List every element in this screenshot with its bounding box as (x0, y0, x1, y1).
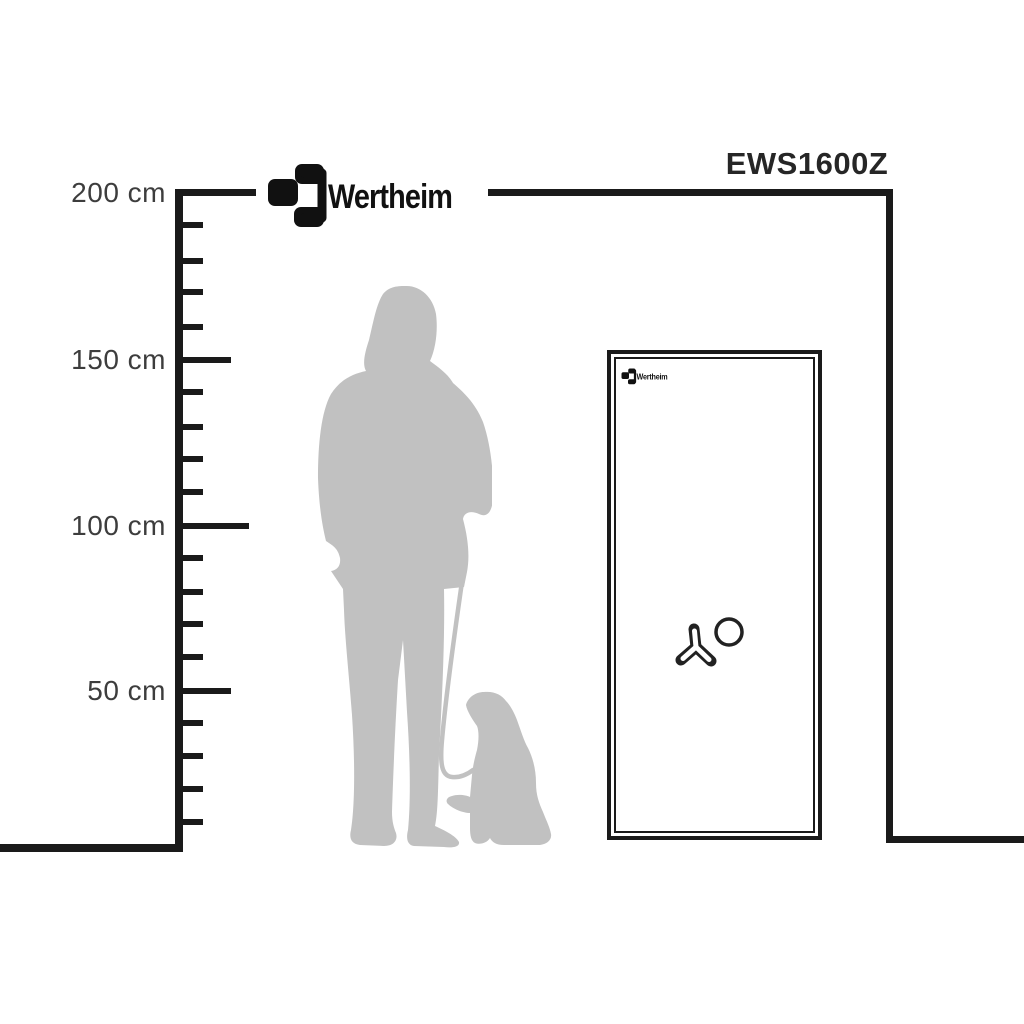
right-reference-line (886, 189, 893, 843)
tick-minor (183, 753, 203, 759)
tick-minor (183, 258, 203, 264)
ruler-label-200cm: 200 cm (60, 176, 166, 210)
ruler-label-50cm: 50 cm (60, 674, 166, 708)
safe-door-logo-text: Wertheim (637, 372, 669, 382)
ruler-vertical-line (175, 189, 183, 852)
safe-door-logo: Wertheim (620, 365, 670, 385)
tick-minor (183, 621, 203, 627)
safe-door-logo-icon (622, 369, 636, 385)
model-name-label: EWS1600Z (707, 146, 907, 182)
dog-silhouette (440, 688, 558, 850)
tick-100cm (183, 523, 249, 529)
ruler-label-150cm: 150 cm (60, 343, 166, 377)
ruler-label-100cm: 100 cm (60, 509, 166, 543)
tick-150cm (183, 357, 231, 363)
top-reference-line-right (488, 189, 893, 196)
dog-body-shape (447, 692, 552, 845)
tick-minor (183, 720, 203, 726)
tick-minor (183, 654, 203, 660)
tri-spoke-handle-icon (681, 629, 711, 661)
tick-minor (183, 389, 203, 395)
tick-minor (183, 289, 203, 295)
tick-minor (183, 589, 203, 595)
top-reference-line-left (175, 189, 256, 196)
tick-minor (183, 819, 203, 825)
wertheim-logo-text: Wertheim (328, 178, 452, 216)
tick-50cm (183, 688, 231, 694)
safe-body (607, 350, 822, 840)
tick-minor (183, 489, 203, 495)
tick-minor (183, 324, 203, 330)
tick-minor (183, 222, 203, 228)
floor-line-left (0, 844, 183, 852)
wertheim-logo-icon (268, 164, 324, 227)
tick-minor (183, 555, 203, 561)
safe-door-frame (614, 357, 815, 833)
tick-minor (183, 786, 203, 792)
tick-minor (183, 456, 203, 462)
floor-line-right (886, 836, 1024, 843)
dial-knob-icon (716, 619, 742, 645)
wertheim-logo: Wertheim (264, 150, 460, 230)
tick-minor (183, 424, 203, 430)
safe-controls (670, 610, 750, 670)
